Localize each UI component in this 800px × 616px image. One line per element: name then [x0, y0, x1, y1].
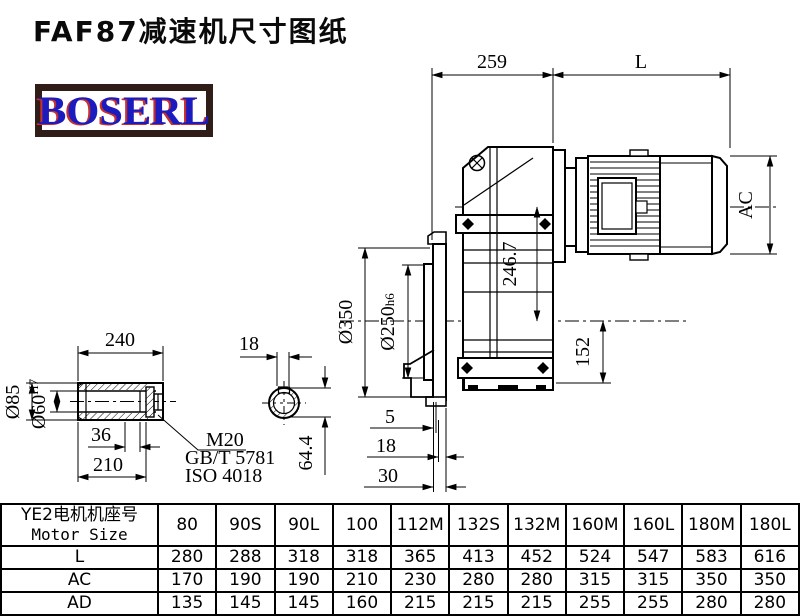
- output-flange: [404, 232, 446, 406]
- column-header: 80: [158, 504, 216, 546]
- motor: [565, 150, 727, 260]
- dim-36: 36: [91, 424, 111, 446]
- dim-64-4: 64.4: [295, 436, 317, 471]
- dim-210: 210: [93, 454, 123, 476]
- column-header: 132M: [508, 504, 566, 546]
- column-header: 180M: [682, 504, 740, 546]
- row-label: AC: [1, 569, 158, 592]
- dim-152: 152: [572, 337, 594, 367]
- dim-L: L: [635, 51, 647, 73]
- column-header: 90L: [275, 504, 333, 546]
- dim-246-7: 246.7: [499, 242, 521, 287]
- motor-size-table: YE2电机机座号 Motor Size 80 90S 90L 100 112M …: [0, 503, 800, 616]
- dim-dia-250h6: Ø250h6: [377, 293, 399, 351]
- row-label: L: [1, 546, 158, 569]
- column-header: 160L: [624, 504, 682, 546]
- dim-dia-85: Ø85: [2, 385, 24, 419]
- column-header: 160M: [566, 504, 624, 546]
- dimension-labels: 259 L AC 246.7 152 Ø350 Ø250h6 5 18 30 2…: [2, 51, 757, 487]
- dim-dia-60h7: Ø60H7: [26, 378, 50, 429]
- column-header: 100: [333, 504, 391, 546]
- dim-dia-350: Ø350: [335, 300, 357, 344]
- table-row-AC: AC 170 190 190 210 230 280 280 315 315 3…: [1, 569, 799, 592]
- dim-259: 259: [477, 51, 507, 73]
- column-header: 180L: [741, 504, 799, 546]
- dim-18-offset: 18: [376, 435, 396, 457]
- dim-AC: AC: [735, 191, 757, 219]
- dim-240: 240: [105, 329, 135, 351]
- column-header: 90S: [216, 504, 274, 546]
- dim-30: 30: [378, 465, 398, 487]
- shaft-cross-section-view: [269, 387, 299, 418]
- table-row-AD: AD 135 145 145 160 215 215 215 255 255 2…: [1, 592, 799, 615]
- bolt-note-iso: ISO 4018: [185, 465, 262, 487]
- table-header-motor-size: YE2电机机座号 Motor Size: [1, 504, 158, 546]
- column-header: 112M: [391, 504, 449, 546]
- dim-key-18: 18: [239, 333, 259, 355]
- dimension-lines: [26, 68, 777, 492]
- column-header: 132S: [449, 504, 507, 546]
- technical-drawing: 259 L AC 246.7 152 Ø350 Ø250h6 5 18 30 2…: [0, 0, 800, 503]
- table-row-L: L 280 288 318 318 365 413 452 524 547 58…: [1, 546, 799, 569]
- row-label: AD: [1, 592, 158, 615]
- dim-5: 5: [385, 406, 395, 428]
